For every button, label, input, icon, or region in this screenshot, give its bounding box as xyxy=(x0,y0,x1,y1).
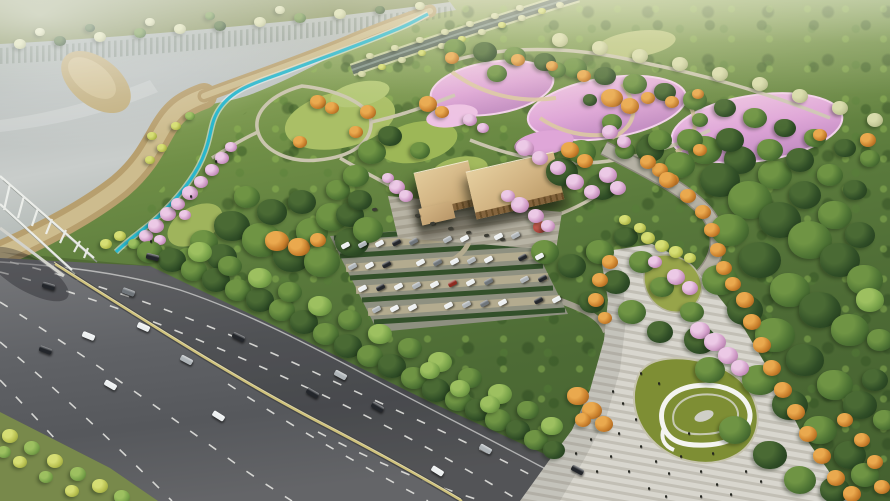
park-aerial-rendering xyxy=(0,0,890,501)
scene-vector-layer xyxy=(0,0,890,501)
plaza xyxy=(520,244,848,501)
